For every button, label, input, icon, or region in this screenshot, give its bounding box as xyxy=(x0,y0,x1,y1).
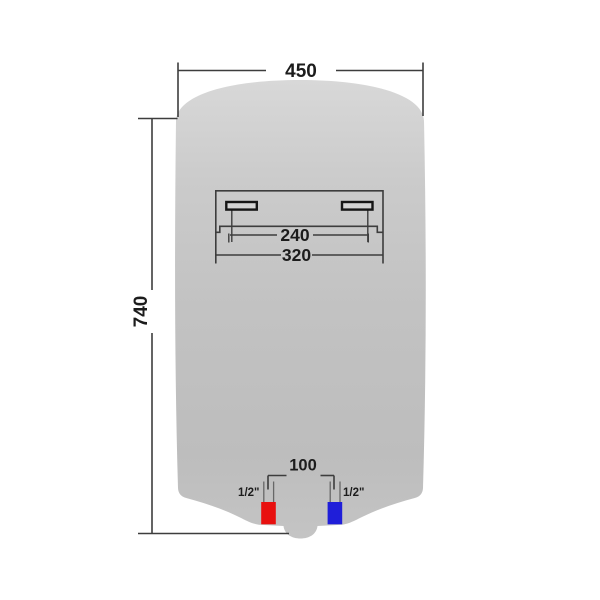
cold-pipe-size-label: 1/2" xyxy=(343,487,364,499)
bracket-slot-right xyxy=(342,202,373,210)
hot-water-pipe-fitting xyxy=(261,502,276,524)
bracket-inner-spacing-label: 240 xyxy=(280,225,309,245)
pipe-spacing-label: 100 xyxy=(289,457,317,475)
diagram-canvas: 450 740 240 320 100 1/2" 1/2" xyxy=(0,0,600,600)
cold-water-pipe-fitting xyxy=(328,502,343,524)
bracket-slot-left xyxy=(226,202,256,210)
top-width-label: 450 xyxy=(285,61,317,82)
bracket-outer-width-label: 320 xyxy=(282,245,311,265)
left-height-label: 740 xyxy=(131,296,152,328)
hot-pipe-size-label: 1/2" xyxy=(238,487,259,499)
water-heater-dimension-diagram: 450 740 240 320 100 1/2" 1/2" xyxy=(0,0,600,600)
